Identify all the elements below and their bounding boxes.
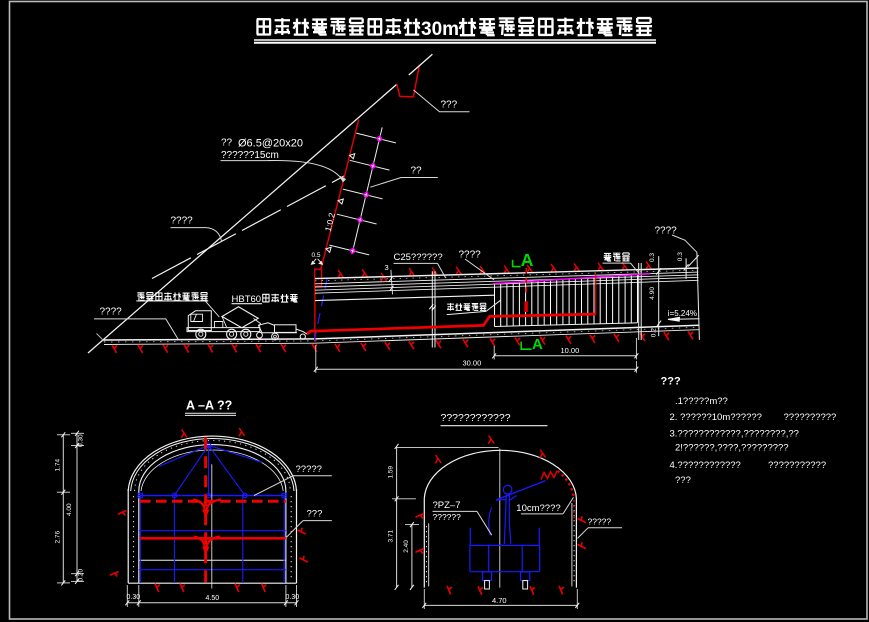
svg-text:?????: ?????: [296, 464, 322, 475]
svg-text:0.3: 0.3: [649, 253, 656, 262]
svg-text:???????????: ???????????: [768, 460, 826, 471]
svg-text:???: ???: [675, 475, 691, 486]
svg-text:A –A ??: A –A ??: [186, 399, 232, 413]
svg-text:.1?????m??: .1?????m??: [675, 396, 728, 407]
svg-text:3.71: 3.71: [388, 529, 395, 542]
svg-text:???: ???: [441, 100, 458, 111]
svg-text:0.30: 0.30: [78, 434, 85, 447]
svg-text:2.76: 2.76: [55, 530, 62, 543]
svg-text:C25??????: C25??????: [394, 252, 443, 263]
svg-text:2!??????,????,?????????: 2!??????,????,?????????: [675, 442, 789, 453]
svg-text:???: ???: [307, 508, 323, 519]
svg-text:??????: ??????: [433, 512, 462, 522]
svg-text:Ø6.5@20x20: Ø6.5@20x20: [238, 137, 303, 149]
svg-text:??????????: ??????????: [784, 412, 837, 423]
svg-text:4.70: 4.70: [492, 596, 507, 605]
svg-text:30.00: 30.00: [463, 359, 482, 368]
svg-text:??: ??: [221, 138, 233, 149]
svg-text:4.50: 4.50: [206, 595, 220, 602]
svg-text:4.00: 4.00: [66, 503, 73, 516]
svg-text:????: ????: [459, 249, 482, 260]
svg-text:?PZ–7: ?PZ–7: [433, 500, 461, 511]
svg-text:??????15cm: ??????15cm: [221, 150, 279, 161]
svg-text:????: ????: [100, 306, 123, 317]
svg-text:0.30: 0.30: [286, 594, 300, 601]
svg-text:3.????????????,????????,??: 3.????????????,????????,??: [670, 428, 799, 439]
svg-text:????: ????: [171, 216, 194, 227]
svg-text:4.????????????: 4.????????????: [670, 460, 741, 471]
svg-text:2. ??????10m??????: 2. ??????10m??????: [670, 412, 762, 423]
svg-text:0.2: 0.2: [651, 328, 658, 337]
svg-text:0.5: 0.5: [312, 252, 321, 259]
svg-text:30m: 30m: [421, 19, 459, 40]
svg-text:????????????: ????????????: [441, 412, 511, 424]
svg-text:0.30: 0.30: [127, 594, 141, 601]
svg-text:0.3: 0.3: [677, 252, 684, 261]
svg-text:10.00: 10.00: [561, 346, 580, 355]
svg-text:1.74: 1.74: [55, 458, 62, 471]
svg-text:A: A: [532, 336, 543, 353]
svg-text:HBT60: HBT60: [232, 294, 262, 305]
svg-text:????: ????: [655, 225, 678, 236]
svg-text:A: A: [521, 250, 534, 270]
svg-text:4.90: 4.90: [649, 287, 656, 300]
svg-text:3: 3: [385, 263, 389, 272]
svg-text:1.59: 1.59: [388, 465, 395, 478]
svg-text:?????: ?????: [588, 517, 612, 527]
svg-text:2.40: 2.40: [403, 540, 410, 553]
svg-text:10cm????: 10cm????: [516, 503, 560, 514]
svg-text:0.20: 0.20: [78, 568, 85, 581]
svg-text:??: ??: [411, 165, 423, 176]
svg-text:???: ???: [661, 376, 681, 388]
svg-text:i=5.24%: i=5.24%: [668, 309, 697, 318]
